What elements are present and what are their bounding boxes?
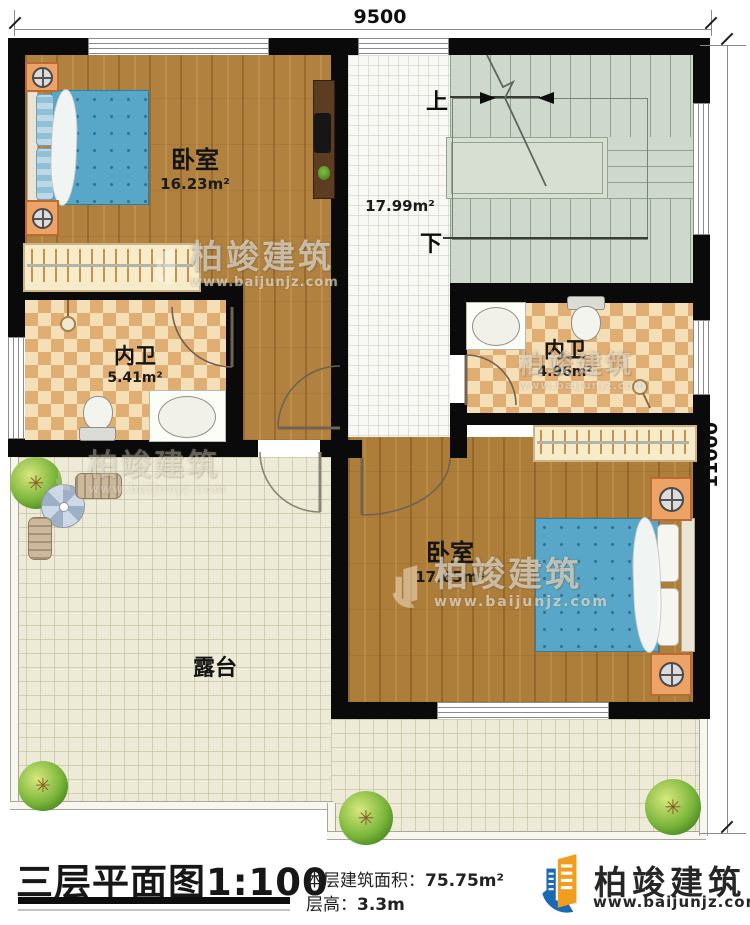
dimension-line-right	[727, 45, 728, 834]
shower-stem	[643, 393, 650, 408]
area-value: 75.75m²	[425, 871, 504, 891]
room-name: 卧室	[140, 140, 250, 175]
bath-right-label: 内卫 4.96m²	[510, 334, 620, 380]
stairs-down-label: 下	[420, 226, 442, 258]
stair-hall-area: 17.99m²	[352, 197, 448, 215]
floor-height-info: 层高：3.3m	[306, 890, 405, 915]
title-underline	[18, 897, 290, 904]
room-name: 内卫	[510, 334, 620, 364]
room-area: 17.65m²	[395, 568, 505, 586]
brand-logo-icon	[536, 852, 590, 914]
bath-left-label: 内卫 5.41m²	[80, 340, 190, 386]
room-area: 16.23m²	[140, 175, 250, 193]
room-name: 卧室	[395, 533, 505, 568]
bedroom1-label: 卧室 16.23m²	[140, 140, 250, 193]
room-area: 4.96m²	[510, 364, 620, 380]
stair-arrow-icon	[538, 92, 554, 104]
dimension-top: 9500	[330, 6, 430, 28]
dimension-right: 11000	[700, 392, 722, 488]
height-value: 3.3m	[357, 895, 405, 915]
room-area: 5.41m²	[80, 370, 190, 386]
bedroom2-label: 卧室 17.65m²	[395, 533, 505, 586]
extension-line	[700, 45, 746, 46]
room-name: 内卫	[80, 340, 190, 370]
door-arc	[466, 355, 516, 405]
brand-url: www.baijunjz.com	[593, 893, 750, 911]
stair-break-line	[487, 55, 546, 186]
floor-area-info: 本层建筑面积：75.75m²	[306, 866, 504, 891]
extension-line	[700, 833, 746, 834]
shower-head-icon	[633, 380, 647, 394]
title-underline-thin	[18, 909, 290, 911]
stairs-up-label: 上	[426, 84, 448, 116]
door-arc	[278, 366, 340, 428]
door-arc	[260, 452, 320, 512]
door-arc	[362, 458, 450, 515]
plan-symbols-layer	[0, 0, 750, 925]
dimension-line-top	[14, 29, 712, 30]
floor-plan: ✳ ✳ ✳ ✳ 卧室 16.23m² 17.99m² 上 下	[0, 0, 750, 925]
stair-arrow-icon	[480, 92, 496, 104]
shower-head-icon	[61, 317, 75, 331]
area-label: 本层建筑面积：	[306, 871, 425, 891]
terrace-label: 露台	[150, 650, 280, 682]
height-label: 层高：	[306, 895, 357, 915]
